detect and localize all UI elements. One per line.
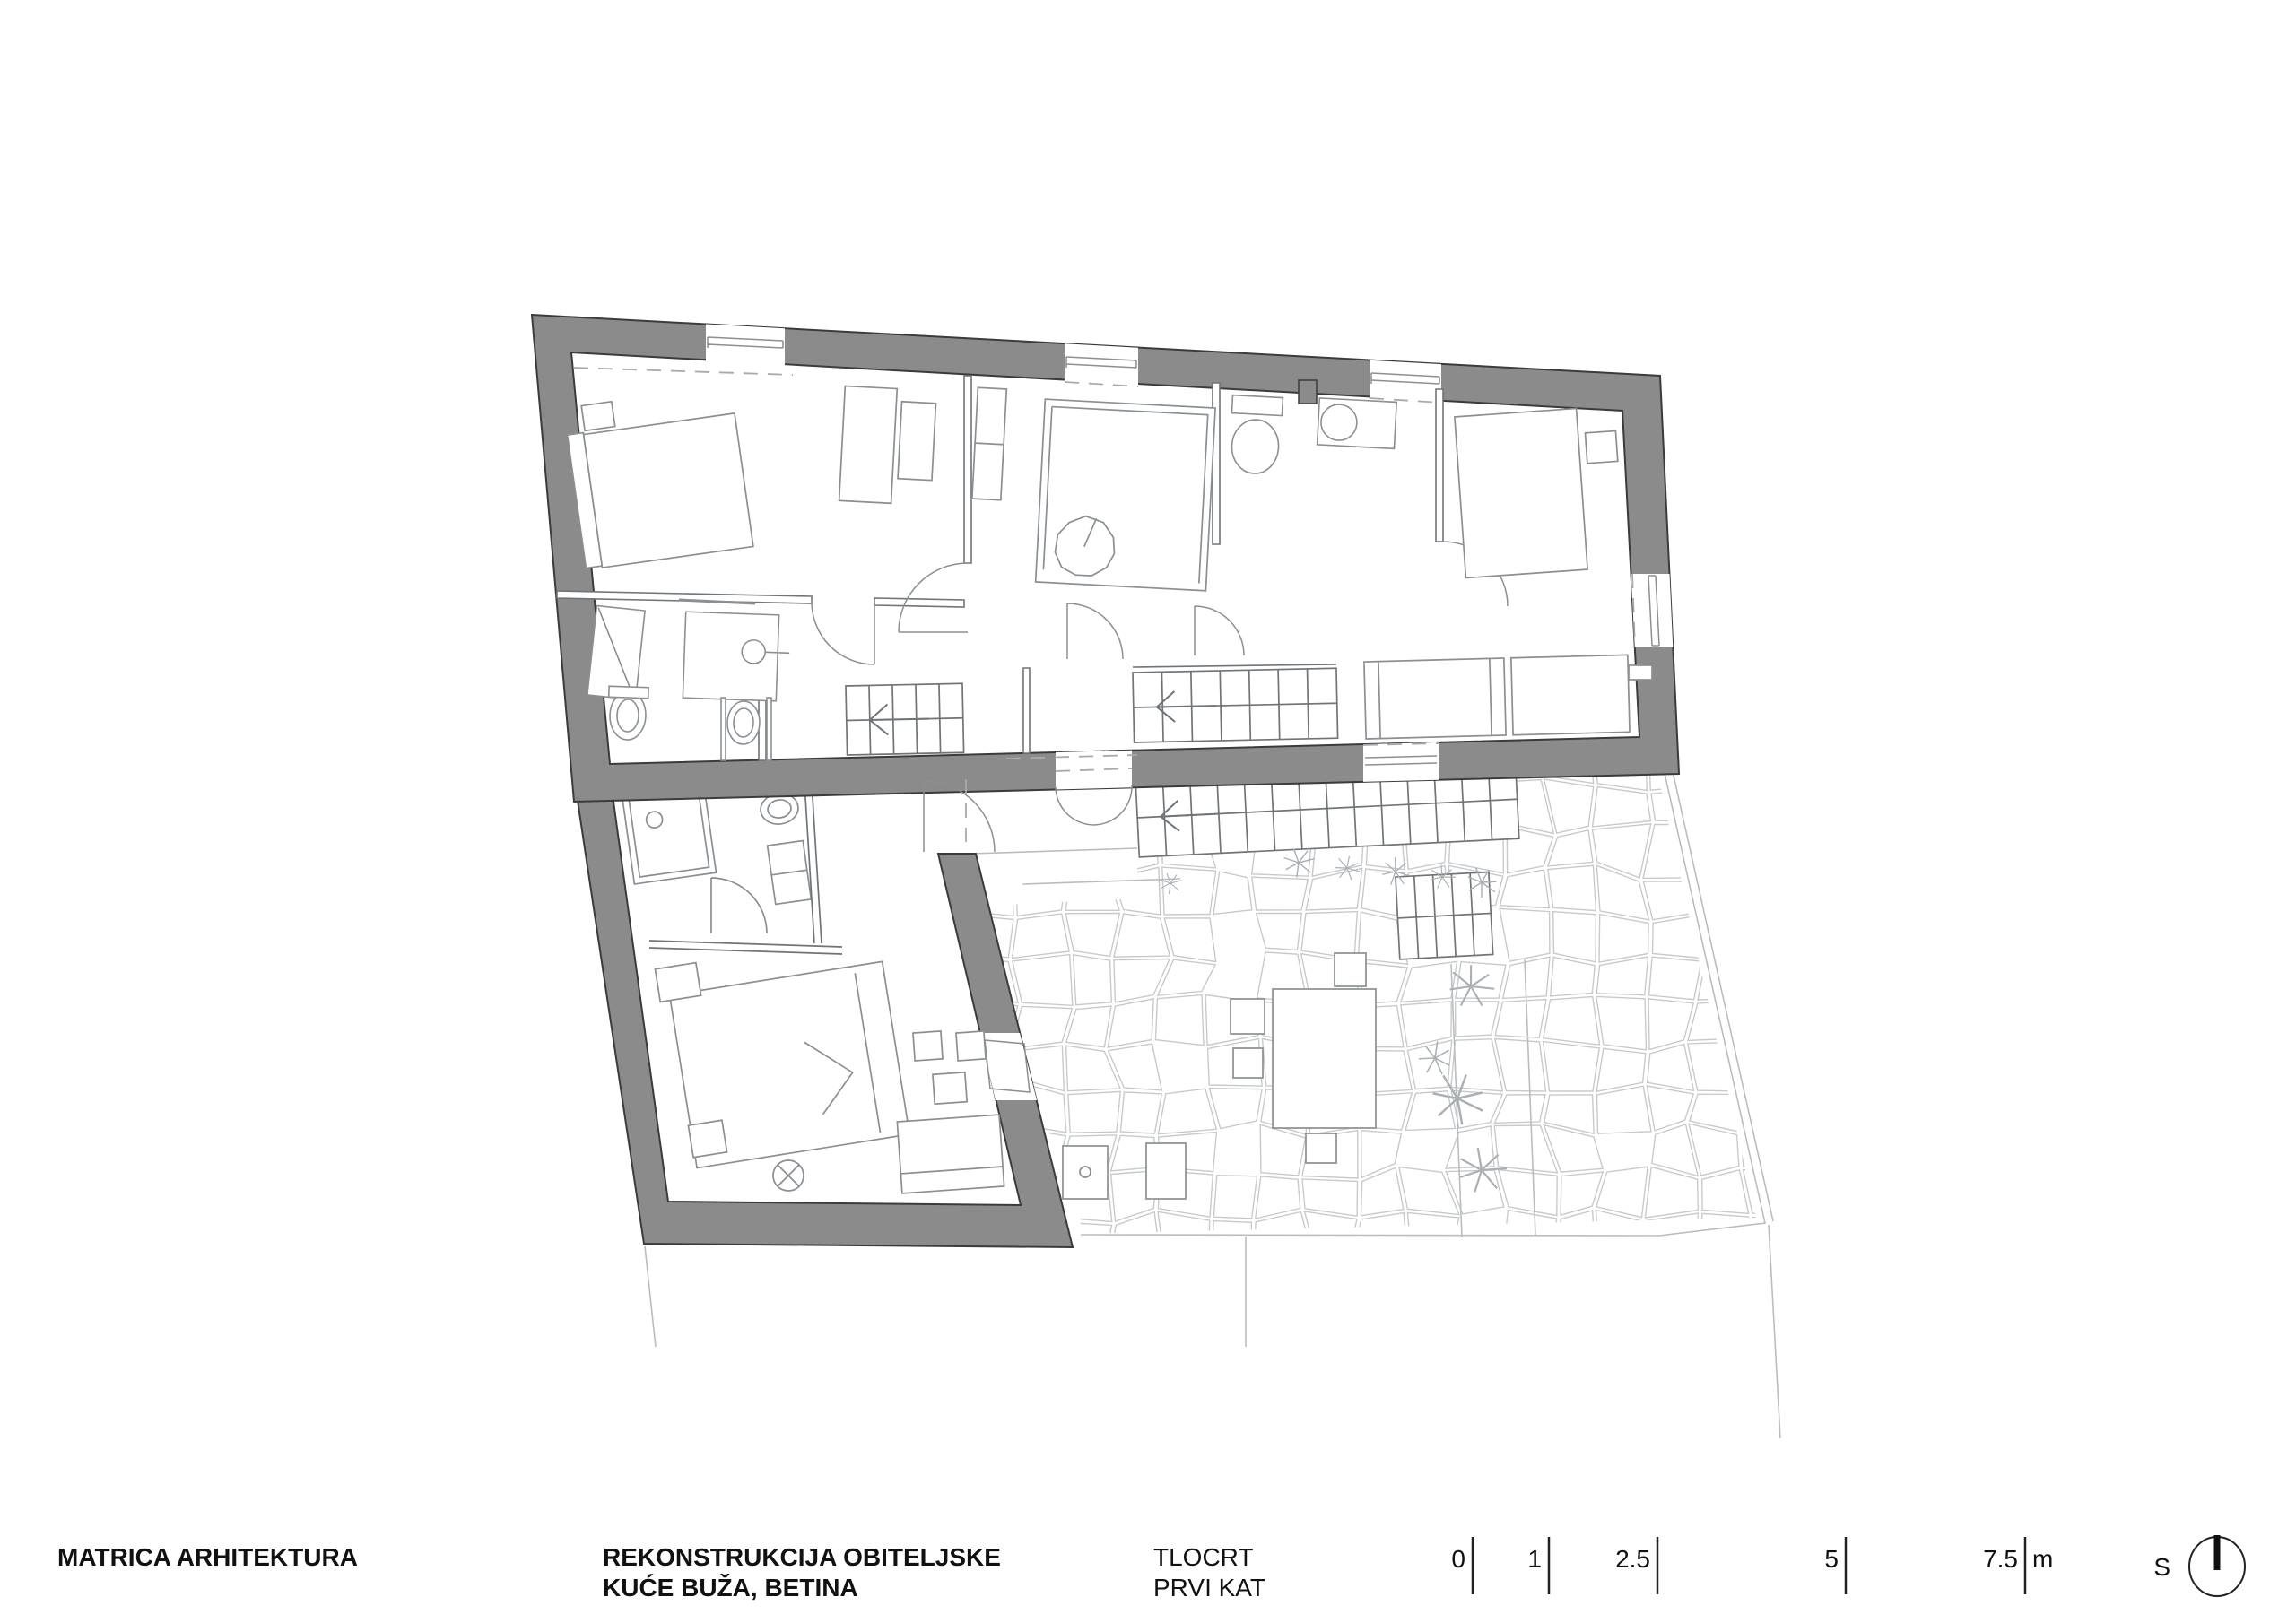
flagstone xyxy=(1407,1212,1458,1255)
flagstone xyxy=(1256,1176,1300,1219)
window-bottom-wall xyxy=(1363,742,1439,782)
scale-unit-label: m xyxy=(2032,1545,2053,1573)
flagstone xyxy=(1495,1000,1546,1038)
flagstone xyxy=(1651,792,1702,822)
chair xyxy=(898,402,935,481)
flagstone xyxy=(1063,785,1111,834)
scale-tick-label: 7.5 xyxy=(1983,1545,2018,1573)
project-title-line2: KUĆE BUŽA, BETINA xyxy=(603,1574,858,1601)
flagstone xyxy=(1596,1167,1648,1217)
flagstone xyxy=(1645,1167,1698,1218)
terrace-stool xyxy=(1233,1048,1263,1078)
toilet-niche-stub xyxy=(767,698,771,760)
flagstone xyxy=(1012,838,1065,877)
flagstone xyxy=(1647,1086,1693,1131)
flagstone xyxy=(1352,1260,1410,1303)
flagstone xyxy=(1446,1253,1500,1301)
partition-wc-right xyxy=(1436,389,1443,542)
shower-drain-icon xyxy=(645,811,663,829)
flagstone xyxy=(1209,1089,1262,1129)
window-top-middle xyxy=(1065,343,1138,386)
flagstone xyxy=(1593,1254,1647,1308)
drawing-title-line2: PRVI KAT xyxy=(1153,1574,1265,1601)
sofa xyxy=(1364,658,1506,739)
flagstone xyxy=(1743,994,1796,1043)
flagstone xyxy=(1503,1253,1555,1304)
flagstone xyxy=(1401,1002,1451,1047)
floor-plan-canvas: MATRICA ARHITEKTURA REKONSTRUKCIJA OBITE… xyxy=(0,0,2296,1623)
flagstone xyxy=(1446,1126,1494,1168)
pouf xyxy=(913,1031,943,1061)
flagstone xyxy=(1108,999,1153,1047)
toilet-bowl xyxy=(1231,419,1280,475)
exterior-stair-lower xyxy=(1396,872,1493,959)
flagstone xyxy=(1551,1257,1595,1305)
flagstone xyxy=(1739,868,1792,919)
flagstone xyxy=(1314,1259,1350,1307)
wing-partition-vertical xyxy=(804,783,822,943)
flagstone xyxy=(1114,959,1170,1002)
toilet-tank xyxy=(609,686,648,699)
north-label: S xyxy=(2153,1553,2170,1581)
flagstone xyxy=(1648,999,1693,1050)
flagstone xyxy=(1074,955,1112,1005)
flagstone xyxy=(1204,1264,1251,1304)
flagstone xyxy=(1544,1042,1600,1091)
partition-bathroom-top xyxy=(557,591,964,607)
flagstone xyxy=(1302,1179,1358,1216)
toilet-bowl-inner xyxy=(767,798,793,819)
project-title-line1: REKONSTRUKCIJA OBITELJSKE xyxy=(603,1543,1001,1571)
nightstand xyxy=(688,1120,726,1158)
stair-line xyxy=(1157,706,1216,707)
flagstone xyxy=(1068,1091,1120,1133)
toilet-tank xyxy=(1231,395,1283,416)
flagstone xyxy=(1750,782,1795,830)
flagstone xyxy=(1158,1211,1210,1260)
flagstone xyxy=(1596,957,1648,995)
wardrobe xyxy=(972,443,1004,500)
flagstone xyxy=(1739,922,1790,961)
north-indicator: S xyxy=(2153,1535,2245,1596)
flagstone xyxy=(1743,958,1784,998)
partition-left-bedroom xyxy=(964,376,971,563)
flagstone xyxy=(1500,908,1550,961)
flagstone xyxy=(1649,957,1702,1000)
nightstand xyxy=(1585,430,1617,463)
flagstone xyxy=(1653,916,1702,959)
flagstone xyxy=(1548,830,1593,866)
flagstone xyxy=(1643,824,1702,878)
flagstone xyxy=(1739,829,1791,867)
flagstone xyxy=(1559,1211,1595,1254)
wing-bedroom xyxy=(655,961,1004,1193)
firm-name: MATRICA ARHITEKTURA xyxy=(57,1543,358,1571)
wall-niche xyxy=(1629,665,1652,680)
flagstone xyxy=(1744,1169,1796,1216)
scale-bar xyxy=(1473,1537,2025,1594)
floor-lamp-icon xyxy=(773,1160,804,1191)
wall-pier xyxy=(1299,380,1317,404)
scale-tick-label: 5 xyxy=(1824,1545,1839,1573)
window-top-right xyxy=(1370,360,1441,403)
flagstone xyxy=(1065,879,1119,911)
chest xyxy=(1511,655,1630,734)
flagstone xyxy=(1013,914,1070,958)
flagstone xyxy=(1066,1006,1111,1047)
flagstone xyxy=(1408,1040,1452,1089)
property-line-left xyxy=(645,1246,656,1347)
stair-opening-edge xyxy=(1133,664,1336,667)
flagstone xyxy=(1065,914,1119,957)
title-block: MATRICA ARHITEKTURA REKONSTRUKCIJA OBITE… xyxy=(57,1535,2245,1601)
flagstone xyxy=(1551,957,1596,996)
bidet-inner xyxy=(733,708,753,738)
terrace-stool xyxy=(1335,953,1366,986)
flagstone xyxy=(1114,914,1170,957)
door-swing-arc xyxy=(1067,603,1123,659)
desk xyxy=(839,386,898,503)
flagstone xyxy=(1596,996,1647,1049)
bedroom-left xyxy=(563,385,936,569)
flagstone xyxy=(1544,997,1600,1046)
north-arrow-needle xyxy=(2214,1535,2221,1570)
bath-cabinet-line xyxy=(771,870,807,875)
scale-bar-labels: 0 1 2.5 5 7.5 m xyxy=(1451,1545,2053,1573)
interior-stair-left xyxy=(846,683,964,755)
door-swing-arc xyxy=(1195,606,1244,655)
flagstone xyxy=(1495,1039,1546,1092)
flagstone xyxy=(1257,914,1302,950)
scale-tick-label: 0 xyxy=(1451,1545,1465,1573)
nightstand xyxy=(655,963,700,1002)
flagstone xyxy=(1593,787,1651,827)
property-line-right xyxy=(1769,1225,1780,1438)
flagstone xyxy=(1648,1045,1694,1091)
bed-master xyxy=(584,413,753,568)
flagstone xyxy=(1700,1213,1750,1262)
window-top-left xyxy=(706,325,785,368)
door-swing-arc xyxy=(899,563,968,632)
floor-plan-sheet: MATRICA ARHITEKTURA REKONSTRUKCIJA OBITE… xyxy=(0,0,2296,1623)
wc-room xyxy=(1229,395,1396,475)
flagstone xyxy=(1016,869,1066,916)
terrace-planter-box xyxy=(1146,1143,1186,1199)
window-right-wall xyxy=(1631,574,1674,647)
flagstone xyxy=(1699,825,1746,878)
flagstone xyxy=(1113,867,1161,915)
flagstone xyxy=(1156,995,1205,1046)
wing-partition-horizontal xyxy=(649,941,842,954)
drawing-title-line1: TLOCRT xyxy=(1153,1543,1254,1571)
door-swing-arc xyxy=(711,878,767,933)
flagstone xyxy=(1495,1095,1545,1124)
flagstone xyxy=(1213,1176,1257,1219)
flagstone xyxy=(1553,912,1596,962)
flagstone xyxy=(1648,1253,1700,1307)
terrace-stool xyxy=(1306,1133,1336,1163)
flagstone xyxy=(1736,1266,1793,1308)
flagstone xyxy=(1013,955,1073,1006)
door-swing-arc xyxy=(812,600,874,664)
flagstone xyxy=(1255,1212,1312,1266)
toilet-niche-stub xyxy=(721,698,726,760)
flagstone xyxy=(1158,1089,1216,1134)
flagstone xyxy=(1020,1254,1064,1300)
flagstone xyxy=(1599,915,1648,962)
flagstone xyxy=(1700,1254,1750,1306)
flagstone xyxy=(1255,1258,1312,1307)
terrace-table xyxy=(1273,989,1376,1128)
stair-line xyxy=(870,719,929,720)
flagstone xyxy=(1412,1257,1451,1301)
scale-tick-label: 2.5 xyxy=(1615,1545,1650,1573)
flagstone xyxy=(1252,877,1309,910)
flagstone xyxy=(1689,784,1750,830)
flagstone xyxy=(1741,1083,1794,1134)
bed-right xyxy=(1455,408,1587,577)
flagstone xyxy=(1561,1172,1603,1215)
interior-stair-right xyxy=(1133,668,1338,742)
flagstone xyxy=(1213,872,1252,915)
flagstone xyxy=(962,1254,1022,1302)
flagstone xyxy=(1743,1042,1796,1091)
flagstone xyxy=(1305,1211,1358,1257)
flagstone xyxy=(1061,1261,1111,1302)
shower-tray-inner xyxy=(629,791,709,877)
bedroom-right xyxy=(1364,406,1652,739)
bench-chest xyxy=(897,1115,1004,1193)
wing-bathroom xyxy=(622,783,842,954)
flagstone xyxy=(1401,961,1457,1002)
flagstone xyxy=(1120,1092,1161,1133)
toilet-bowl-inner xyxy=(616,699,639,733)
flagstone xyxy=(1596,1048,1646,1091)
terrace-stool xyxy=(1231,999,1265,1034)
partition-wc-left xyxy=(1213,383,1220,544)
flagstone xyxy=(1456,1002,1499,1037)
bedroom-middle xyxy=(972,387,1215,591)
flagstone xyxy=(1110,1261,1161,1304)
flagstone xyxy=(1548,865,1596,910)
flagstone xyxy=(1688,1002,1744,1041)
flagstone xyxy=(1301,912,1357,959)
flagstone xyxy=(1451,1039,1503,1091)
flagstone xyxy=(1504,1211,1557,1255)
entry-double-door-leaves xyxy=(1056,785,1132,825)
flagstone xyxy=(1702,1170,1749,1214)
terrace-bottom-edge xyxy=(1081,1235,1659,1236)
flagstone xyxy=(1162,867,1216,915)
flagstone xyxy=(1597,1086,1652,1133)
flagstone xyxy=(1155,1263,1209,1305)
flagstone xyxy=(1745,743,1794,779)
scale-tick-label: 1 xyxy=(1527,1545,1542,1573)
flagstone xyxy=(1500,870,1550,908)
flagstone xyxy=(1499,1170,1558,1216)
pouf xyxy=(956,1031,986,1061)
terrace-drain-icon xyxy=(1080,1167,1091,1177)
shower-arm xyxy=(765,652,789,653)
flagstone xyxy=(1698,962,1744,1000)
wardrobe xyxy=(975,387,1006,445)
flagstone xyxy=(1069,832,1111,877)
pouf xyxy=(933,1072,967,1104)
partition-hall-jamb xyxy=(1023,668,1030,753)
nightstand xyxy=(581,402,615,430)
flagstone xyxy=(1164,918,1215,962)
